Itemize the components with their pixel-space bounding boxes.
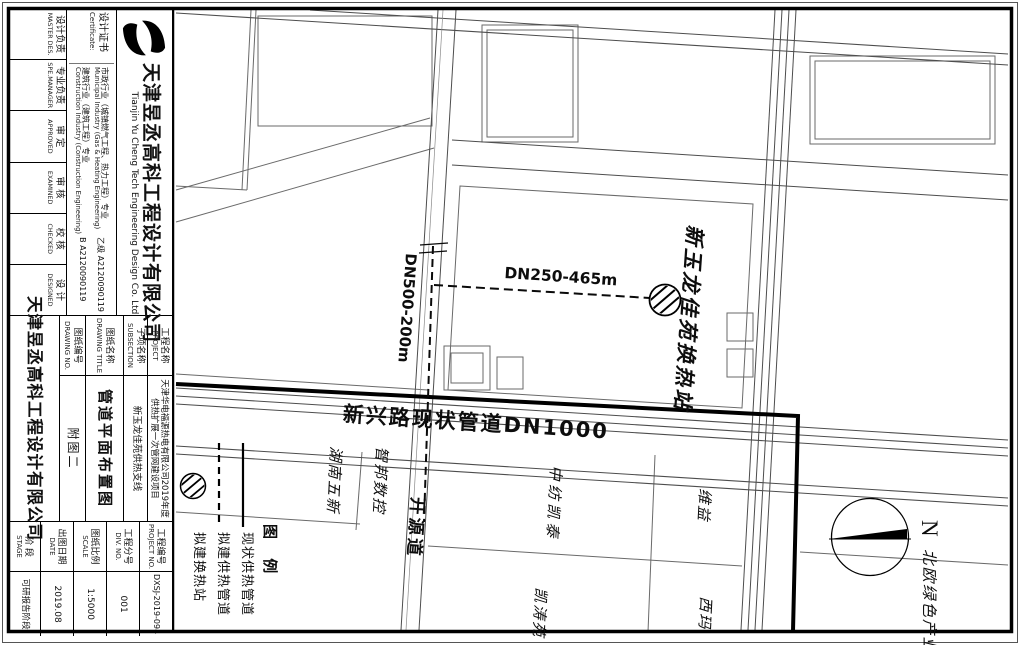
legend-item-existing-pipe: 现状供热管道 [239,532,258,616]
road-name-label: 开源道 [402,496,431,559]
legend-title: 图 例 [260,524,281,580]
area-label-nordic-park: 北欧绿色产业园 [919,549,941,645]
north-arrow-icon [829,499,911,576]
legend-item-proposed-pipe: 拟建供热管道 [215,532,234,616]
area-label-xima: 西玛 [694,596,717,631]
legend-hatched-circle [166,466,225,510]
sheet-outer-border [3,3,1018,643]
area-label-zhongfangkaitai: 中纺凯泰 [542,465,567,542]
area-label-kaitaoyuan: 凯涛苑 [528,587,552,639]
area-label-hunanwuxin: 湖南五新 [322,446,347,515]
area-label-weiyi: 维益 [693,488,716,523]
drawing-sheet: 天津昱丞高科工程设计有限公司 Tianjin Yu Cheng Tech Eng… [0,0,1020,645]
north-label: N [916,520,942,537]
area-label-zhibangshukong: 智邦数控 [368,446,393,515]
plan-linework [0,0,1020,645]
legend-item-proposed-station: 拟建换热站 [191,532,210,602]
